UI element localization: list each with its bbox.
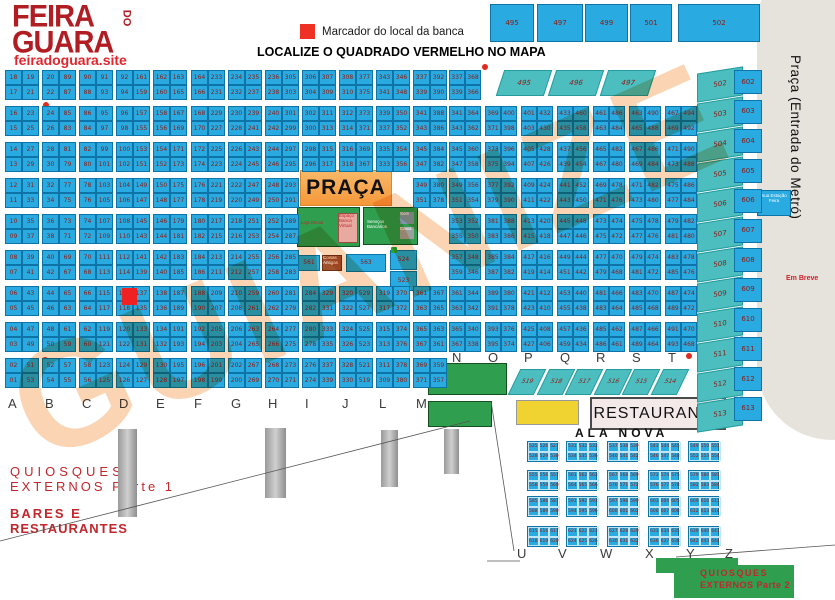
stall-cell-112: 112 xyxy=(116,250,133,265)
stall-cell-563: 563 xyxy=(588,471,599,481)
stall-cell-528: 528 xyxy=(528,452,539,462)
stall-cell-611: 611 xyxy=(734,337,762,361)
coisas-antigas-cell: Coisas Antigas xyxy=(322,255,342,271)
stall-cell-125: 125 xyxy=(96,373,113,388)
column-letter-P: P xyxy=(524,350,533,365)
stall-cell-136: 136 xyxy=(153,301,170,316)
stall-cell-601: 601 xyxy=(619,507,630,517)
stall-cell-494: 494 xyxy=(681,106,697,121)
stall-cell-134: 134 xyxy=(153,322,170,337)
stall-cell-474: 474 xyxy=(645,250,661,265)
stall-cell-579: 579 xyxy=(689,471,700,481)
bares-line1: BARES E xyxy=(10,506,82,521)
stall-cell-200: 200 xyxy=(228,373,245,388)
stall-cell-573: 573 xyxy=(649,471,660,481)
stall-cell-106: 106 xyxy=(116,193,133,208)
stall-cell-471: 471 xyxy=(665,142,681,157)
stall-cell-640: 640 xyxy=(700,527,711,537)
stall-cell-627: 627 xyxy=(608,527,619,537)
stall-cell-85: 85 xyxy=(59,106,76,121)
stall-cell-168: 168 xyxy=(191,106,208,121)
stall-cell-489: 489 xyxy=(665,301,681,316)
stall-cell-167: 167 xyxy=(170,106,187,121)
stall-cell-82: 82 xyxy=(79,142,96,157)
stall-cell-176: 176 xyxy=(191,178,208,193)
stall-cell-408: 408 xyxy=(537,322,553,337)
column-letter-A: A xyxy=(8,396,17,411)
stall-cell-436: 436 xyxy=(573,322,589,337)
stall-cell-477: 477 xyxy=(593,250,609,265)
stall-cell-228: 228 xyxy=(228,121,245,136)
stall-cell-205: 205 xyxy=(208,322,225,337)
stall-cell-474: 474 xyxy=(681,286,697,301)
column-letter-L: L xyxy=(379,396,386,411)
stall-cell-636: 636 xyxy=(649,537,660,547)
stall-cell-605: 605 xyxy=(670,497,681,507)
stall-cell-441: 441 xyxy=(557,178,573,193)
stall-cell-457: 457 xyxy=(557,322,573,337)
stall-cell-629: 629 xyxy=(629,527,640,537)
location-marker xyxy=(122,288,137,305)
stall-cell-183: 183 xyxy=(170,250,187,265)
ala-nova-block: 525526527528529530 xyxy=(527,441,558,462)
logo-do: DO xyxy=(120,10,132,27)
stall-cell-638: 638 xyxy=(670,537,681,547)
column-letter-S: S xyxy=(632,350,641,365)
stall-cell-583: 583 xyxy=(700,481,711,491)
stall-cell-361: 361 xyxy=(413,286,430,301)
stall-cell-187: 187 xyxy=(170,286,187,301)
stall-cell-56: 56 xyxy=(79,373,96,388)
ala-nova-block: 573574575576577578 xyxy=(648,470,679,491)
stall-cell-622: 622 xyxy=(578,527,589,537)
stall-cell-297: 297 xyxy=(282,142,299,157)
stall-cell-04: 04 xyxy=(5,322,22,337)
stall-cell-133: 133 xyxy=(133,322,150,337)
stall-cell-418: 418 xyxy=(537,229,553,244)
stall-cell-540: 540 xyxy=(608,452,619,462)
stall-cell-242: 242 xyxy=(265,121,282,136)
stall-cell-604: 604 xyxy=(734,129,762,153)
stall-cell-05: 05 xyxy=(5,301,22,316)
stall-cell-606: 606 xyxy=(649,507,660,517)
stall-cell-607: 607 xyxy=(734,219,762,243)
quiosques1-line2: EXTERNOS Parte 1 xyxy=(10,479,175,494)
ala-nova-label: ALA NOVA xyxy=(575,426,668,440)
stall-cell-203: 203 xyxy=(208,337,225,352)
stall-cell-609: 609 xyxy=(689,497,700,507)
stall-cell-588: 588 xyxy=(528,507,539,517)
stall-cell-461: 461 xyxy=(593,106,609,121)
stall-cell-49: 49 xyxy=(22,337,39,352)
stall-cell-616: 616 xyxy=(539,527,550,537)
stall-cell-243: 243 xyxy=(245,142,262,157)
stall-cell-156: 156 xyxy=(153,121,170,136)
stall-cell-543: 543 xyxy=(649,442,660,452)
stall-cell-486: 486 xyxy=(681,178,697,193)
stall-cell-609: 609 xyxy=(734,278,762,302)
stall-cell-202: 202 xyxy=(228,358,245,373)
stall-cell-483: 483 xyxy=(665,250,681,265)
stall-cell-470: 470 xyxy=(681,322,697,337)
stall-cell-281: 281 xyxy=(282,286,299,301)
ala-nova-block: 579580581582583584 xyxy=(688,470,719,491)
stall-cell-632: 632 xyxy=(629,537,640,547)
stall-cell-536: 536 xyxy=(588,452,599,462)
stall-cell-547: 547 xyxy=(660,452,671,462)
stall-cell-161: 161 xyxy=(133,70,150,85)
stall-cell-86: 86 xyxy=(79,106,96,121)
stall-cell-577: 577 xyxy=(660,481,671,491)
stall-cell-236: 236 xyxy=(265,70,282,85)
stall-cell-239: 239 xyxy=(245,106,262,121)
stall-cell-352: 352 xyxy=(465,214,481,229)
stall-cell-424: 424 xyxy=(537,178,553,193)
stall-cell-218: 218 xyxy=(228,214,245,229)
stall-cell-53: 53 xyxy=(22,373,39,388)
stall-cell-07: 07 xyxy=(5,265,22,280)
stall-cell-380: 380 xyxy=(393,373,410,388)
stall-cell-12: 12 xyxy=(5,178,22,193)
stall-cell-220: 220 xyxy=(228,193,245,208)
stall-cell-63: 63 xyxy=(59,301,76,316)
stall-cell-466: 466 xyxy=(645,322,661,337)
stall-cell-490: 490 xyxy=(681,142,697,157)
stall-cell-475: 475 xyxy=(593,229,609,244)
stall-cell-475: 475 xyxy=(665,178,681,193)
stall-cell-123: 123 xyxy=(96,358,113,373)
stall-cell-485: 485 xyxy=(629,301,645,316)
stall-cell-467: 467 xyxy=(593,157,609,172)
stall-cell-617: 617 xyxy=(549,527,560,537)
stall-cell-604: 604 xyxy=(660,497,671,507)
stall-cell-599: 599 xyxy=(629,497,640,507)
stall-cell-76: 76 xyxy=(79,193,96,208)
stall-cell-482: 482 xyxy=(609,142,625,157)
stall-cell-529: 529 xyxy=(356,286,373,301)
site-link[interactable]: feiradoguara.site xyxy=(14,52,127,68)
stall-cell-373: 373 xyxy=(356,106,373,121)
stall-cell-374: 374 xyxy=(501,337,517,352)
stall-cell-213: 213 xyxy=(208,250,225,265)
stall-cell-96: 96 xyxy=(116,106,133,121)
stall-cell-217: 217 xyxy=(208,214,225,229)
column-letter-T: T xyxy=(668,350,676,365)
stall-cell-590: 590 xyxy=(549,507,560,517)
stall-cell-75: 75 xyxy=(59,193,76,208)
stall-cell-525: 525 xyxy=(356,322,373,337)
stall-cell-422: 422 xyxy=(537,193,553,208)
column-letter-I: I xyxy=(305,396,309,411)
stall-cell-198: 198 xyxy=(191,373,208,388)
stall-cell-487: 487 xyxy=(665,286,681,301)
stall-cell-405: 405 xyxy=(521,142,537,157)
stall-cell-88: 88 xyxy=(79,85,96,100)
stall-cell-635: 635 xyxy=(670,527,681,537)
column-letter-N: N xyxy=(452,350,461,365)
stall-cell-391: 391 xyxy=(485,301,501,316)
stall-cell-107: 107 xyxy=(96,214,113,229)
stall-cell-247: 247 xyxy=(245,178,262,193)
ala-nova-block: 555556557558559560 xyxy=(527,470,558,491)
green-dot xyxy=(391,247,397,253)
stall-cell-138: 138 xyxy=(153,286,170,301)
service-block-1-sub: Espaço Banca Virtual xyxy=(338,213,358,243)
stall-cell-03: 03 xyxy=(5,337,22,352)
stall-cell-350: 350 xyxy=(393,106,410,121)
stall-cell-104: 104 xyxy=(116,178,133,193)
stall-cell-318: 318 xyxy=(339,157,356,172)
stall-cell-32: 32 xyxy=(42,178,59,193)
stall-cell-145: 145 xyxy=(133,214,150,229)
stall-cell-371: 371 xyxy=(413,373,430,388)
stall-cell-416: 416 xyxy=(537,250,553,265)
ala-nova-block: 531532533534535536 xyxy=(566,441,597,462)
stall-cell-177: 177 xyxy=(170,193,187,208)
ala-nova-block: 537538539540541542 xyxy=(607,441,638,462)
stall-cell-308: 308 xyxy=(339,70,356,85)
stall-cell-376: 376 xyxy=(501,322,517,337)
stall-cell-488: 488 xyxy=(681,157,697,172)
stall-cell-603: 603 xyxy=(734,100,762,124)
stall-cell-369: 369 xyxy=(413,358,430,373)
stall-cell-382: 382 xyxy=(501,265,517,280)
stall-cell-571: 571 xyxy=(619,481,630,491)
stall-cell-164: 164 xyxy=(191,70,208,85)
stall-cell-352: 352 xyxy=(393,121,410,136)
stall-cell-72: 72 xyxy=(79,229,96,244)
stall-cell-342: 342 xyxy=(465,301,481,316)
stall-cell-79: 79 xyxy=(59,157,76,172)
stall-cell-273: 273 xyxy=(282,358,299,373)
stall-cell-596: 596 xyxy=(588,507,599,517)
stall-cell-35: 35 xyxy=(22,214,39,229)
stall-cell-284: 284 xyxy=(302,286,319,301)
stall-cell-561: 561 xyxy=(298,255,320,271)
stall-cell-175: 175 xyxy=(170,178,187,193)
stall-cell-491: 491 xyxy=(665,322,681,337)
stall-cell-353: 353 xyxy=(449,214,465,229)
stall-cell-445: 445 xyxy=(557,214,573,229)
stall-cell-245: 245 xyxy=(245,157,262,172)
stall-cell-563: 563 xyxy=(346,254,386,272)
stall-cell-146: 146 xyxy=(153,214,170,229)
stall-cell-38: 38 xyxy=(42,229,59,244)
stall-cell-440: 440 xyxy=(573,286,589,301)
stall-cell-479: 479 xyxy=(665,214,681,229)
stall-cell-499: 499 xyxy=(585,4,628,42)
pillar xyxy=(381,430,398,487)
stall-cell-238: 238 xyxy=(265,85,282,100)
stall-cell-340: 340 xyxy=(465,322,481,337)
ala-nova-block: 621622623624625626 xyxy=(566,526,597,547)
stall-cell-18: 18 xyxy=(5,70,22,85)
stall-cell-295: 295 xyxy=(282,157,299,172)
stall-cell-111: 111 xyxy=(96,250,113,265)
stall-cell-207: 207 xyxy=(208,301,225,316)
stall-cell-519: 519 xyxy=(356,373,373,388)
stall-cell-460: 460 xyxy=(573,106,589,121)
stall-cell-359: 359 xyxy=(449,265,465,280)
stall-cell-23: 23 xyxy=(22,106,39,121)
stall-cell-59: 59 xyxy=(59,337,76,352)
column-letter-U: U xyxy=(517,546,526,561)
stall-cell-477: 477 xyxy=(665,193,681,208)
stall-cell-160: 160 xyxy=(153,85,170,100)
stall-cell-66: 66 xyxy=(79,286,96,301)
stall-cell-452: 452 xyxy=(573,178,589,193)
stall-cell-276: 276 xyxy=(302,358,319,373)
stall-cell-412: 412 xyxy=(537,286,553,301)
stall-cell-618: 618 xyxy=(528,537,539,547)
stall-cell-448: 448 xyxy=(573,214,589,229)
stall-cell-293: 293 xyxy=(282,178,299,193)
stall-cell-153: 153 xyxy=(133,142,150,157)
stall-cell-345: 345 xyxy=(449,142,465,157)
logo: FEIRA GUARA xyxy=(12,4,113,56)
stall-cell-421: 421 xyxy=(521,286,537,301)
stall-cell-482: 482 xyxy=(681,214,697,229)
stall-cell-143: 143 xyxy=(133,229,150,244)
stall-cell-471: 471 xyxy=(629,178,645,193)
ala-nova-block: 591592593594595596 xyxy=(566,496,597,517)
stall-cell-282: 282 xyxy=(302,301,319,316)
stall-cell-16: 16 xyxy=(5,106,22,121)
stall-cell-328: 328 xyxy=(339,358,356,373)
stall-cell-626: 626 xyxy=(588,537,599,547)
quiosques1-line1: QUIOSQUES xyxy=(10,464,125,479)
stall-cell-630: 630 xyxy=(608,537,619,547)
stall-cell-530: 530 xyxy=(549,452,560,462)
stall-cell-333: 333 xyxy=(319,322,336,337)
stall-cell-206: 206 xyxy=(228,322,245,337)
stall-cell-148: 148 xyxy=(153,193,170,208)
stall-cell-302: 302 xyxy=(302,106,319,121)
stall-cell-359: 359 xyxy=(430,358,447,373)
stall-cell-526: 526 xyxy=(539,442,550,452)
stall-cell-94: 94 xyxy=(116,85,133,100)
stall-cell-02: 02 xyxy=(5,358,22,373)
stall-cell-50: 50 xyxy=(42,337,59,352)
stall-cell-289: 289 xyxy=(282,214,299,229)
stall-cell-144: 144 xyxy=(153,229,170,244)
stall-cell-386: 386 xyxy=(430,121,447,136)
stall-cell-64: 64 xyxy=(79,301,96,316)
stall-cell-637: 637 xyxy=(660,537,671,547)
stall-cell-370: 370 xyxy=(393,286,410,301)
stall-cell-52: 52 xyxy=(42,358,59,373)
stall-cell-376: 376 xyxy=(393,337,410,352)
stall-cell-90: 90 xyxy=(79,70,96,85)
stall-cell-396: 396 xyxy=(501,142,517,157)
red-dot xyxy=(686,353,692,359)
stall-cell-42: 42 xyxy=(42,265,59,280)
stall-cell-480: 480 xyxy=(681,229,697,244)
stall-cell-373: 373 xyxy=(485,142,501,157)
stall-cell-581: 581 xyxy=(710,471,721,481)
stall-cell-634: 634 xyxy=(660,527,671,537)
stall-cell-490: 490 xyxy=(645,106,661,121)
stall-cell-470: 470 xyxy=(645,286,661,301)
stall-cell-377: 377 xyxy=(485,178,501,193)
stall-cell-486: 486 xyxy=(645,142,661,157)
stall-cell-566: 566 xyxy=(588,481,599,491)
stall-cell-211: 211 xyxy=(208,265,225,280)
stall-cell-476: 476 xyxy=(609,193,625,208)
stall-cell-400: 400 xyxy=(501,106,517,121)
stall-cell-410: 410 xyxy=(537,301,553,316)
stall-cell-258: 258 xyxy=(265,265,282,280)
stall-cell-363: 363 xyxy=(413,301,430,316)
stall-cell-481: 481 xyxy=(593,286,609,301)
bares-line2: RESTAURANTES xyxy=(10,521,128,536)
stall-cell-556: 556 xyxy=(539,471,550,481)
stall-cell-467: 467 xyxy=(665,106,681,121)
column-letter-Y: Y xyxy=(686,546,695,561)
stall-cell-58: 58 xyxy=(79,358,96,373)
stall-cell-196: 196 xyxy=(191,358,208,373)
stall-cell-324: 324 xyxy=(339,322,356,337)
stall-cell-25: 25 xyxy=(22,121,39,136)
stall-cell-147: 147 xyxy=(133,193,150,208)
stall-cell-159: 159 xyxy=(133,85,150,100)
stall-cell-544: 544 xyxy=(660,442,671,452)
stall-cell-299: 299 xyxy=(282,121,299,136)
stall-cell-24: 24 xyxy=(42,106,59,121)
stall-cell-267: 267 xyxy=(245,358,262,373)
column-letter-M: M xyxy=(416,396,427,411)
stall-cell-234: 234 xyxy=(228,70,245,85)
stall-cell-385: 385 xyxy=(485,250,501,265)
stall-cell-262: 262 xyxy=(265,301,282,316)
stall-cell-426: 426 xyxy=(537,157,553,172)
stall-cell-443: 443 xyxy=(557,193,573,208)
stall-cell-535: 535 xyxy=(578,452,589,462)
stall-cell-280: 280 xyxy=(302,322,319,337)
stall-cell-569: 569 xyxy=(629,471,640,481)
stall-cell-389: 389 xyxy=(485,286,501,301)
stall-cell-287: 287 xyxy=(282,229,299,244)
stall-cell-619: 619 xyxy=(539,537,550,547)
stall-cell-19: 19 xyxy=(22,70,39,85)
stall-cell-212: 212 xyxy=(228,265,245,280)
stall-cell-343: 343 xyxy=(413,121,430,136)
stall-cell-254: 254 xyxy=(265,229,282,244)
stall-cell-480: 480 xyxy=(645,193,661,208)
stall-cell-598: 598 xyxy=(619,497,630,507)
stall-cell-525: 525 xyxy=(528,442,539,452)
stall-cell-189: 189 xyxy=(170,301,187,316)
stall-cell-589: 589 xyxy=(539,507,550,517)
stall-cell-565: 565 xyxy=(578,481,589,491)
stall-cell-251: 251 xyxy=(245,214,262,229)
stall-cell-185: 185 xyxy=(170,265,187,280)
stall-cell-73: 73 xyxy=(59,214,76,229)
ala-nova-block: 639640641642643644 xyxy=(688,526,719,547)
stall-cell-350: 350 xyxy=(465,229,481,244)
stall-cell-552: 552 xyxy=(689,452,700,462)
stall-cell-355: 355 xyxy=(449,229,465,244)
stall-cell-252: 252 xyxy=(265,214,282,229)
stall-cell-115: 115 xyxy=(96,286,113,301)
stall-cell-420: 420 xyxy=(537,214,553,229)
ala-nova-block: 633634635636637638 xyxy=(648,526,679,547)
stall-cell-150: 150 xyxy=(153,178,170,193)
stall-cell-17: 17 xyxy=(5,85,22,100)
stall-cell-548: 548 xyxy=(670,452,681,462)
stall-cell-259: 259 xyxy=(245,286,262,301)
stall-cell-09: 09 xyxy=(5,229,22,244)
